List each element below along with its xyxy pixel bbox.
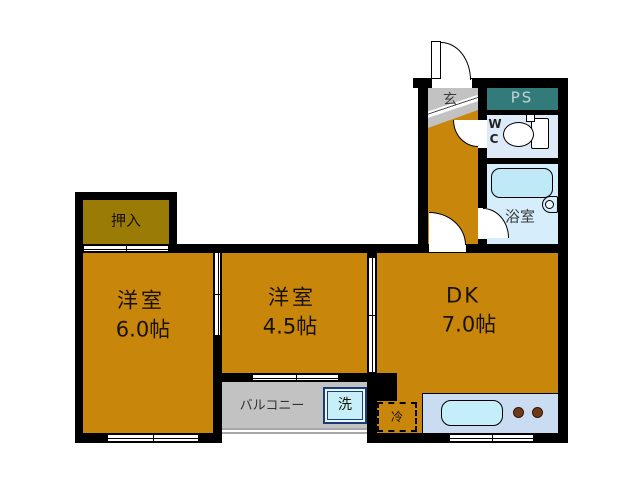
toilet-bowl-icon xyxy=(503,122,534,147)
genkan-label: 玄 xyxy=(443,93,457,107)
closet-label: 押入 xyxy=(111,214,141,229)
entrance-door-leaf xyxy=(431,41,441,79)
bath-sink-bowl-icon xyxy=(545,200,554,209)
room45-balcony-window xyxy=(253,374,338,381)
wall xyxy=(558,78,568,443)
dk-window xyxy=(450,434,533,442)
balcony-label: バルコニー xyxy=(240,400,305,413)
fridge-label: 冷 xyxy=(391,411,403,423)
washer-label: 洗 xyxy=(338,398,352,412)
entrance-door-arc xyxy=(441,42,471,80)
room6-size: 6.0帖 xyxy=(116,320,170,341)
bath-label: 浴室 xyxy=(505,210,535,225)
ps-label: PS xyxy=(511,91,534,106)
burner-icon xyxy=(513,407,524,418)
toilet-button-icon xyxy=(526,114,535,122)
floor-plan: 押入 洋室 6.0帖 洋室 4.5帖 DK 7.0帖 玄 PS W C 浴室 バ… xyxy=(0,0,640,480)
entrance-doorway xyxy=(432,79,472,88)
hall-doorway xyxy=(429,245,466,252)
balcony-rail xyxy=(222,428,367,434)
wall xyxy=(487,110,558,115)
wall xyxy=(75,244,83,443)
room45-dk-sliding-door xyxy=(368,258,376,372)
closet-sliding-door xyxy=(84,245,168,252)
room6-room45-sliding-door xyxy=(214,253,221,335)
burner-icon xyxy=(532,407,543,418)
dk-size: 7.0帖 xyxy=(442,315,496,336)
kitchen-sink-icon xyxy=(441,400,503,426)
wc-label-c: C xyxy=(490,133,499,145)
room6-name: 洋室 xyxy=(117,291,165,312)
room45-floor xyxy=(222,253,368,373)
wc-doorway xyxy=(478,120,487,148)
room45-name: 洋室 xyxy=(268,288,316,309)
bathtub-icon xyxy=(491,168,553,198)
wall xyxy=(487,158,558,164)
dk-name: DK xyxy=(446,286,480,307)
wall xyxy=(367,401,377,433)
room45-size: 4.5帖 xyxy=(263,317,317,338)
wall xyxy=(75,192,177,200)
room6-window xyxy=(108,434,198,442)
room6-floor xyxy=(83,253,213,435)
wc-label-w: W xyxy=(488,118,501,130)
wall xyxy=(367,373,397,401)
wall xyxy=(418,78,428,253)
